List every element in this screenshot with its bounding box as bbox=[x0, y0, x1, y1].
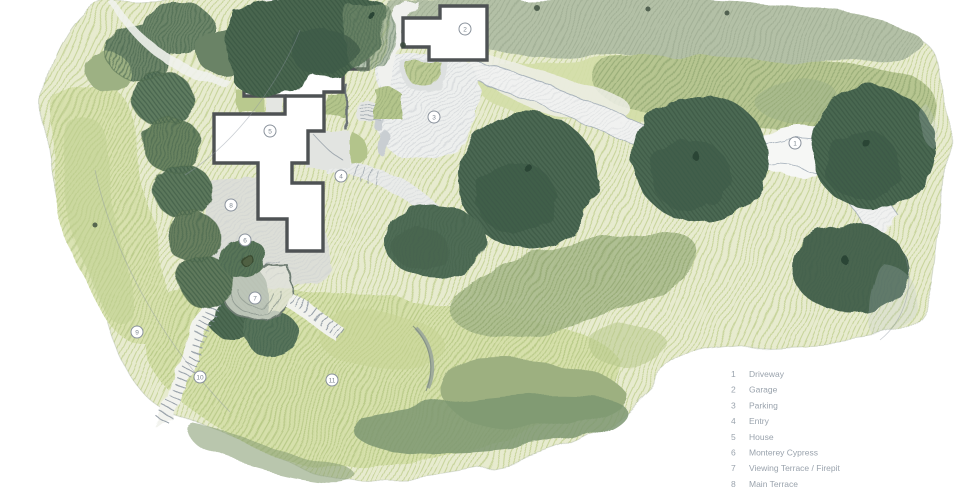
svg-text:8: 8 bbox=[731, 479, 736, 489]
svg-text:7: 7 bbox=[731, 463, 736, 473]
svg-text:11: 11 bbox=[329, 377, 336, 384]
svg-text:5: 5 bbox=[268, 128, 272, 135]
svg-text:Garage: Garage bbox=[749, 385, 778, 395]
svg-text:Parking: Parking bbox=[749, 400, 778, 410]
svg-text:Viewing Terrace / Firepit: Viewing Terrace / Firepit bbox=[749, 463, 841, 473]
svg-text:7: 7 bbox=[253, 295, 257, 302]
svg-text:10: 10 bbox=[196, 374, 204, 381]
svg-text:5: 5 bbox=[731, 432, 736, 442]
svg-text:4: 4 bbox=[731, 416, 736, 426]
svg-text:6: 6 bbox=[243, 237, 247, 244]
svg-text:2: 2 bbox=[463, 26, 467, 33]
svg-text:1: 1 bbox=[793, 140, 797, 147]
svg-text:8: 8 bbox=[229, 202, 233, 209]
svg-text:6: 6 bbox=[731, 448, 736, 458]
svg-text:House: House bbox=[749, 432, 774, 442]
svg-text:Monterey Cypress: Monterey Cypress bbox=[749, 448, 818, 458]
svg-text:Main Terrace: Main Terrace bbox=[749, 479, 798, 489]
svg-text:3: 3 bbox=[432, 114, 436, 121]
svg-text:2: 2 bbox=[731, 385, 736, 395]
svg-text:4: 4 bbox=[339, 173, 343, 180]
svg-text:1: 1 bbox=[731, 369, 736, 379]
svg-text:Driveway: Driveway bbox=[749, 369, 785, 379]
svg-text:Entry: Entry bbox=[749, 416, 770, 426]
svg-text:3: 3 bbox=[731, 400, 736, 410]
svg-text:9: 9 bbox=[135, 329, 139, 336]
